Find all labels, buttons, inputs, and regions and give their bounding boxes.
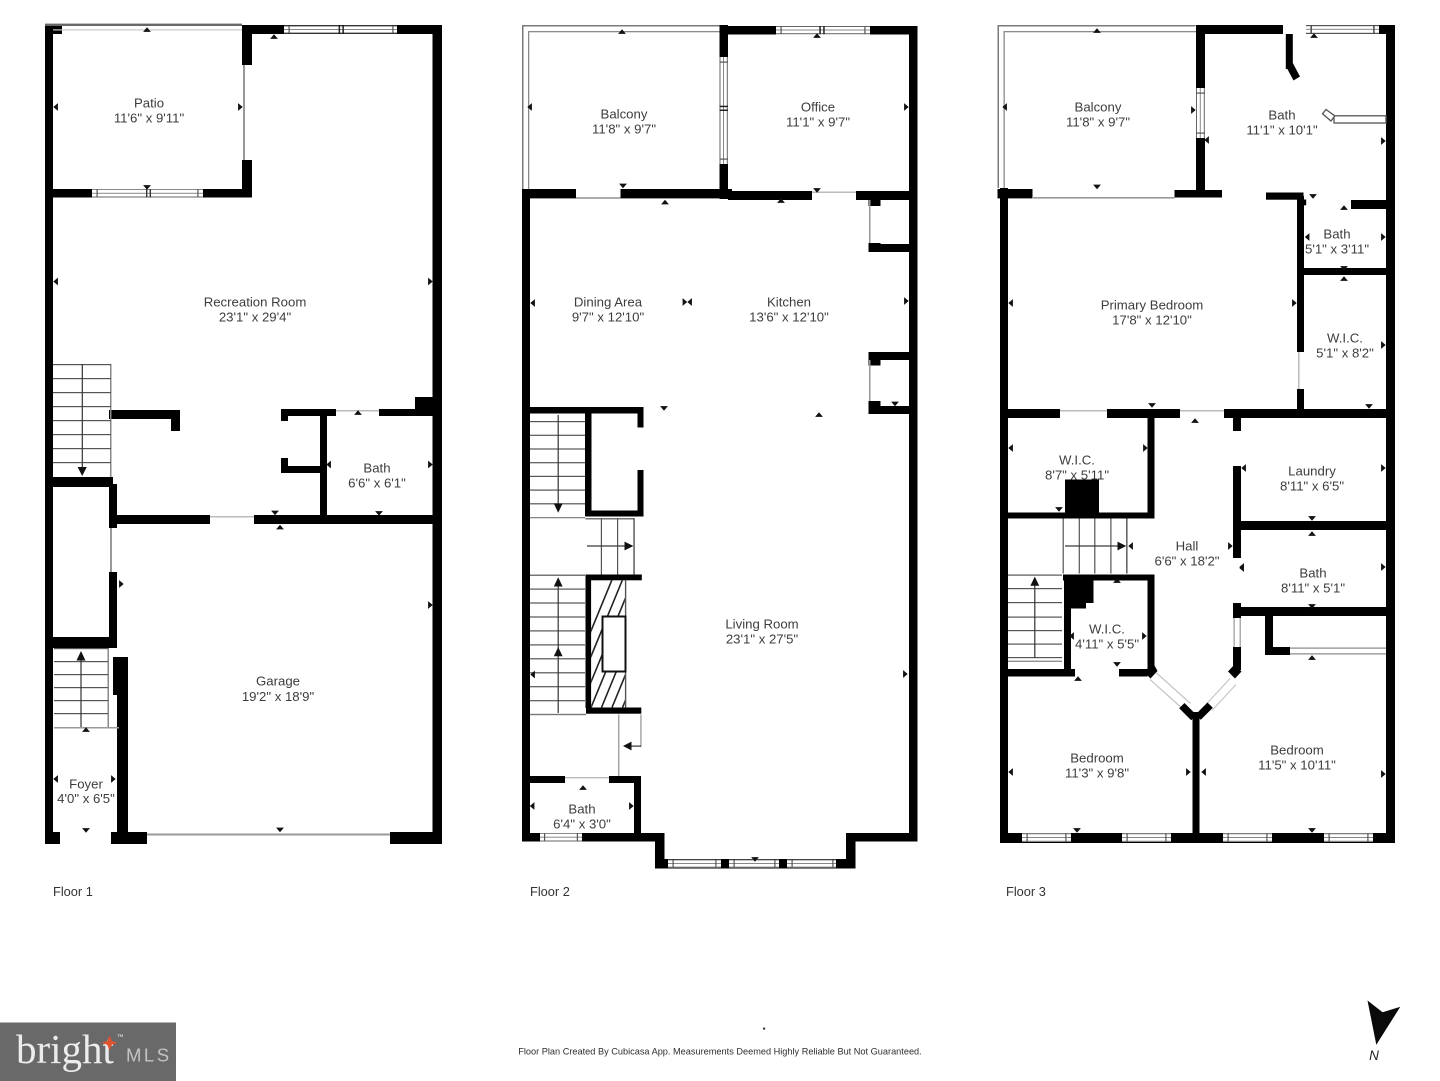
svg-text:Living Room: Living Room bbox=[725, 617, 798, 632]
svg-text:11'8" x 9'7": 11'8" x 9'7" bbox=[1066, 115, 1130, 130]
svg-text:Balcony: Balcony bbox=[601, 107, 648, 122]
svg-text:Floor Plan Created By Cubicasa: Floor Plan Created By Cubicasa App. Meas… bbox=[518, 1047, 921, 1057]
svg-text:Bath: Bath bbox=[568, 802, 595, 817]
svg-text:Kitchen: Kitchen bbox=[767, 295, 811, 310]
svg-text:8'11" x 5'1": 8'11" x 5'1" bbox=[1281, 581, 1345, 596]
svg-text:6'6" x 18'2": 6'6" x 18'2" bbox=[1155, 554, 1220, 569]
svg-text:6'6" x 6'1": 6'6" x 6'1" bbox=[348, 476, 406, 491]
svg-text:11'6" x 9'11": 11'6" x 9'11" bbox=[114, 111, 185, 126]
svg-text:11'8" x 9'7": 11'8" x 9'7" bbox=[592, 122, 656, 137]
svg-text:Floor 1: Floor 1 bbox=[53, 884, 93, 899]
svg-text:Foyer: Foyer bbox=[69, 777, 103, 792]
svg-text:11'3" x 9'8": 11'3" x 9'8" bbox=[1065, 766, 1129, 781]
svg-text:19'2" x 18'9": 19'2" x 18'9" bbox=[242, 689, 315, 704]
svg-text:Bedroom: Bedroom bbox=[1070, 751, 1124, 766]
svg-text:4'11" x 5'5": 4'11" x 5'5" bbox=[1075, 637, 1139, 652]
svg-text:6'4" x 3'0": 6'4" x 3'0" bbox=[553, 817, 611, 832]
svg-text:Floor 3: Floor 3 bbox=[1006, 884, 1046, 899]
svg-text:Bath: Bath bbox=[363, 461, 390, 476]
svg-text:MLS: MLS bbox=[126, 1045, 172, 1066]
svg-text:Bath: Bath bbox=[1268, 108, 1295, 123]
svg-text:Recreation Room: Recreation Room bbox=[204, 295, 307, 310]
svg-text:5'1" x 3'11": 5'1" x 3'11" bbox=[1305, 242, 1369, 257]
svg-text:™: ™ bbox=[117, 1034, 124, 1041]
svg-text:11'1" x 9'7": 11'1" x 9'7" bbox=[786, 115, 850, 130]
svg-text:23'1" x 29'4": 23'1" x 29'4" bbox=[219, 310, 292, 325]
svg-text:9'7" x 12'10": 9'7" x 12'10" bbox=[572, 310, 645, 325]
svg-text:Bath: Bath bbox=[1299, 566, 1326, 581]
svg-text:Primary Bedroom: Primary Bedroom bbox=[1101, 298, 1204, 313]
svg-text:Bedroom: Bedroom bbox=[1270, 743, 1324, 758]
svg-text:W.I.C.: W.I.C. bbox=[1059, 453, 1095, 468]
svg-text:Garage: Garage bbox=[256, 674, 300, 689]
svg-text:4'0" x 6'5": 4'0" x 6'5" bbox=[57, 791, 115, 806]
svg-text:13'6" x 12'10": 13'6" x 12'10" bbox=[749, 310, 829, 325]
svg-text:23'1" x 27'5": 23'1" x 27'5" bbox=[726, 632, 799, 647]
svg-text:5'1" x 8'2": 5'1" x 8'2" bbox=[1316, 346, 1374, 361]
svg-text:8'7" x 5'11": 8'7" x 5'11" bbox=[1045, 468, 1109, 483]
svg-text:17'8" x 12'10": 17'8" x 12'10" bbox=[1112, 313, 1192, 328]
svg-text:Office: Office bbox=[801, 100, 835, 115]
svg-text:Hall: Hall bbox=[1176, 539, 1199, 554]
svg-text:Floor 2: Floor 2 bbox=[530, 884, 570, 899]
svg-text:Laundry: Laundry bbox=[1288, 464, 1336, 479]
svg-text:N: N bbox=[1369, 1048, 1379, 1063]
svg-text:bright: bright bbox=[16, 1026, 115, 1072]
svg-text:8'11" x 6'5": 8'11" x 6'5" bbox=[1280, 479, 1344, 494]
svg-text:Bath: Bath bbox=[1323, 227, 1350, 242]
svg-text:Balcony: Balcony bbox=[1075, 100, 1122, 115]
svg-text:Patio: Patio bbox=[134, 96, 164, 111]
svg-text:W.I.C.: W.I.C. bbox=[1089, 622, 1125, 637]
svg-text:11'1" x 10'1": 11'1" x 10'1" bbox=[1246, 123, 1318, 138]
svg-text:W.I.C.: W.I.C. bbox=[1327, 331, 1363, 346]
svg-text:11'5" x 10'11": 11'5" x 10'11" bbox=[1258, 758, 1336, 773]
svg-text:Dining Area: Dining Area bbox=[574, 295, 643, 310]
